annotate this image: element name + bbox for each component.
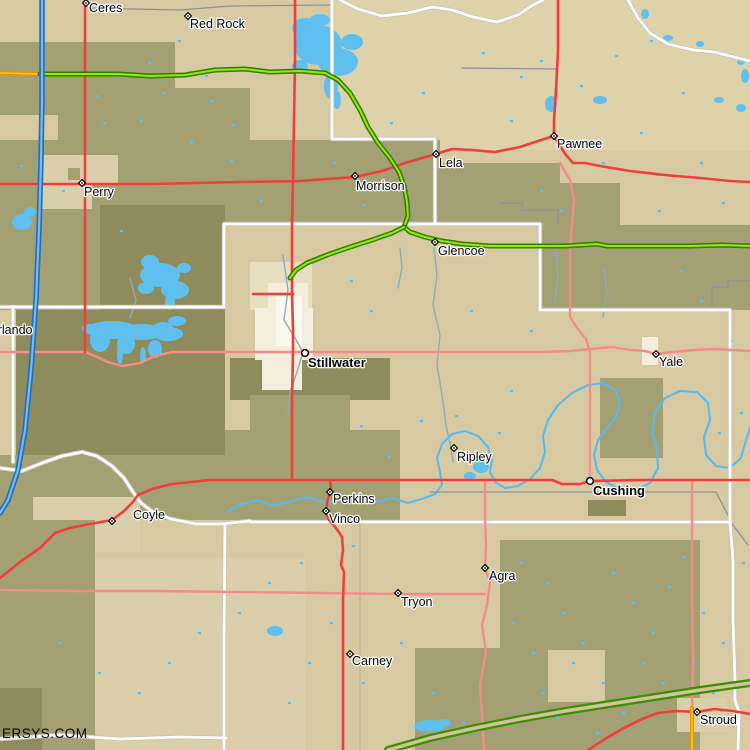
terrain-patch bbox=[68, 168, 80, 180]
lake bbox=[267, 626, 283, 636]
pond bbox=[668, 586, 671, 588]
pond bbox=[530, 330, 533, 332]
pond bbox=[632, 602, 635, 604]
pond bbox=[532, 652, 535, 654]
pond bbox=[700, 300, 703, 302]
pond bbox=[238, 612, 241, 614]
pond bbox=[432, 692, 435, 694]
terrain-patch bbox=[276, 296, 302, 346]
city-marker-dot-pawnee bbox=[553, 135, 555, 137]
pond bbox=[98, 672, 101, 674]
pond bbox=[582, 642, 585, 644]
attribution: ERSYS.COM bbox=[2, 726, 88, 741]
map-canvas: CeresRed RockPerryMorrisonLelaPawneeGlen… bbox=[0, 0, 750, 750]
pond bbox=[168, 662, 171, 664]
pond bbox=[658, 210, 661, 212]
pond bbox=[602, 162, 605, 164]
pond bbox=[95, 95, 98, 97]
pond bbox=[162, 92, 165, 94]
pond bbox=[560, 210, 563, 212]
lake bbox=[641, 9, 649, 19]
pond bbox=[362, 204, 365, 206]
city-label-yale[interactable]: Yale bbox=[659, 355, 683, 369]
city-marker-dot-coyle bbox=[111, 520, 113, 522]
city-label-tryon[interactable]: Tryon bbox=[401, 595, 433, 609]
city-marker-dot-tryon bbox=[397, 592, 399, 594]
pond bbox=[662, 682, 665, 684]
city-label-vinco[interactable]: Vinco bbox=[329, 512, 360, 526]
pond bbox=[190, 141, 193, 143]
pond bbox=[562, 612, 565, 614]
pond bbox=[370, 310, 373, 312]
pond bbox=[482, 52, 485, 54]
pond bbox=[232, 124, 235, 126]
pond bbox=[520, 562, 523, 564]
lake bbox=[593, 96, 607, 104]
pond bbox=[20, 165, 23, 167]
lake bbox=[736, 104, 746, 112]
lake bbox=[161, 281, 189, 299]
pond bbox=[612, 572, 615, 574]
pond bbox=[740, 412, 743, 414]
pond bbox=[138, 692, 141, 694]
pond bbox=[140, 120, 143, 122]
pond bbox=[300, 562, 303, 564]
pond bbox=[572, 662, 575, 664]
pond bbox=[682, 556, 685, 558]
pond bbox=[722, 642, 725, 644]
city-label-orlando[interactable]: Orlando bbox=[0, 323, 33, 337]
pond bbox=[742, 562, 745, 564]
city-label-coyle[interactable]: Coyle bbox=[133, 508, 165, 522]
city-label-morrison[interactable]: Morrison bbox=[356, 179, 405, 193]
pond bbox=[540, 190, 543, 192]
pond bbox=[210, 100, 213, 102]
pond bbox=[58, 642, 61, 644]
lake bbox=[153, 322, 173, 334]
lake bbox=[177, 263, 191, 273]
lake bbox=[696, 41, 704, 47]
terrain-patch bbox=[262, 352, 302, 390]
pond bbox=[362, 682, 365, 684]
pond bbox=[682, 92, 685, 94]
pond bbox=[615, 55, 618, 57]
county-line bbox=[224, 524, 225, 750]
lake bbox=[714, 97, 724, 103]
pond bbox=[148, 62, 151, 64]
pond bbox=[510, 120, 513, 122]
lake bbox=[310, 14, 330, 26]
pond bbox=[640, 132, 643, 134]
pond bbox=[580, 85, 583, 87]
city-label-agra[interactable]: Agra bbox=[489, 569, 515, 583]
terrain-patch bbox=[330, 0, 750, 150]
pond bbox=[360, 425, 363, 427]
pond bbox=[642, 662, 645, 664]
pond bbox=[512, 622, 515, 624]
pond bbox=[700, 162, 703, 164]
pond bbox=[542, 692, 545, 694]
road-orange bbox=[0, 73, 40, 74]
city-label-ceres[interactable]: Ceres bbox=[89, 1, 122, 15]
pond bbox=[400, 642, 403, 644]
pond bbox=[103, 122, 106, 124]
city-label-lela[interactable]: Lela bbox=[439, 156, 463, 170]
city-label-stillwater[interactable]: Stillwater bbox=[308, 355, 366, 370]
city-label-carney[interactable]: Carney bbox=[352, 654, 393, 668]
pond bbox=[722, 202, 725, 204]
pond bbox=[288, 702, 291, 704]
pond bbox=[540, 60, 543, 62]
pond bbox=[260, 200, 263, 202]
pond bbox=[712, 692, 715, 694]
city-marker-dot-morrison bbox=[354, 175, 356, 177]
pond bbox=[230, 160, 233, 162]
terrain-patch bbox=[548, 650, 605, 702]
pond bbox=[622, 712, 625, 714]
pond bbox=[350, 280, 353, 282]
city-marker-dot-ripley bbox=[453, 447, 455, 449]
city-marker-dot-lela bbox=[435, 153, 437, 155]
lake bbox=[141, 255, 159, 269]
lake bbox=[117, 344, 123, 364]
city-label-perry[interactable]: Perry bbox=[84, 185, 115, 199]
city-marker-dot-agra bbox=[484, 567, 486, 569]
terrain-patch bbox=[95, 558, 305, 750]
pond bbox=[462, 722, 465, 724]
pond bbox=[510, 390, 513, 392]
city-label-glencoe[interactable]: Glencoe bbox=[438, 244, 485, 258]
pond bbox=[520, 76, 523, 78]
city-marker-dot-ceres bbox=[85, 2, 87, 4]
pond bbox=[650, 40, 653, 42]
pond bbox=[330, 622, 333, 624]
pond bbox=[390, 122, 393, 124]
pond bbox=[498, 432, 501, 434]
city-marker-dot-perry bbox=[81, 182, 83, 184]
terrain-patch bbox=[250, 395, 350, 453]
pond bbox=[602, 682, 605, 684]
city-marker-dot-red-rock bbox=[187, 15, 189, 17]
lake bbox=[437, 719, 451, 727]
lake bbox=[24, 207, 36, 217]
city-label-cushing[interactable]: Cushing bbox=[593, 483, 645, 498]
pond bbox=[702, 612, 705, 614]
pond bbox=[420, 420, 423, 422]
terrain-patch bbox=[100, 205, 225, 310]
pond bbox=[546, 582, 549, 584]
pond bbox=[680, 270, 683, 272]
pond bbox=[596, 732, 599, 734]
pond bbox=[718, 432, 721, 434]
map-viewport[interactable]: CeresRed RockPerryMorrisonLelaPawneeGlen… bbox=[0, 0, 750, 750]
city-label-pawnee[interactable]: Pawnee bbox=[557, 137, 602, 151]
city-label-red-rock[interactable]: Red Rock bbox=[190, 17, 246, 31]
pond bbox=[120, 230, 123, 232]
pond bbox=[62, 190, 65, 192]
pond bbox=[422, 92, 425, 94]
pond bbox=[652, 632, 655, 634]
city-label-ripley[interactable]: Ripley bbox=[457, 450, 492, 464]
pond bbox=[333, 162, 336, 164]
pond bbox=[455, 415, 458, 417]
lake bbox=[138, 282, 154, 294]
pond bbox=[198, 632, 201, 634]
road-pink bbox=[692, 481, 693, 710]
city-marker-dot-yale bbox=[655, 353, 657, 355]
pond bbox=[268, 582, 271, 584]
lake bbox=[741, 69, 749, 83]
city-label-perkins[interactable]: Perkins bbox=[333, 492, 375, 506]
pond bbox=[308, 662, 311, 664]
pond bbox=[388, 456, 391, 458]
city-marker-dot-glencoe bbox=[434, 241, 436, 243]
city-marker-dot-vinco bbox=[325, 510, 327, 512]
city-marker-dot-stroud bbox=[696, 711, 698, 713]
lake bbox=[341, 34, 363, 50]
pond bbox=[178, 40, 181, 42]
pond bbox=[470, 310, 473, 312]
terrain-patch bbox=[588, 500, 626, 516]
pond bbox=[352, 545, 355, 547]
city-label-stroud[interactable]: Stroud bbox=[700, 713, 737, 727]
terrain-patch bbox=[175, 88, 250, 140]
city-marker-dot-carney bbox=[349, 653, 351, 655]
pond bbox=[205, 75, 208, 77]
city-marker-dot-perkins bbox=[329, 491, 331, 493]
